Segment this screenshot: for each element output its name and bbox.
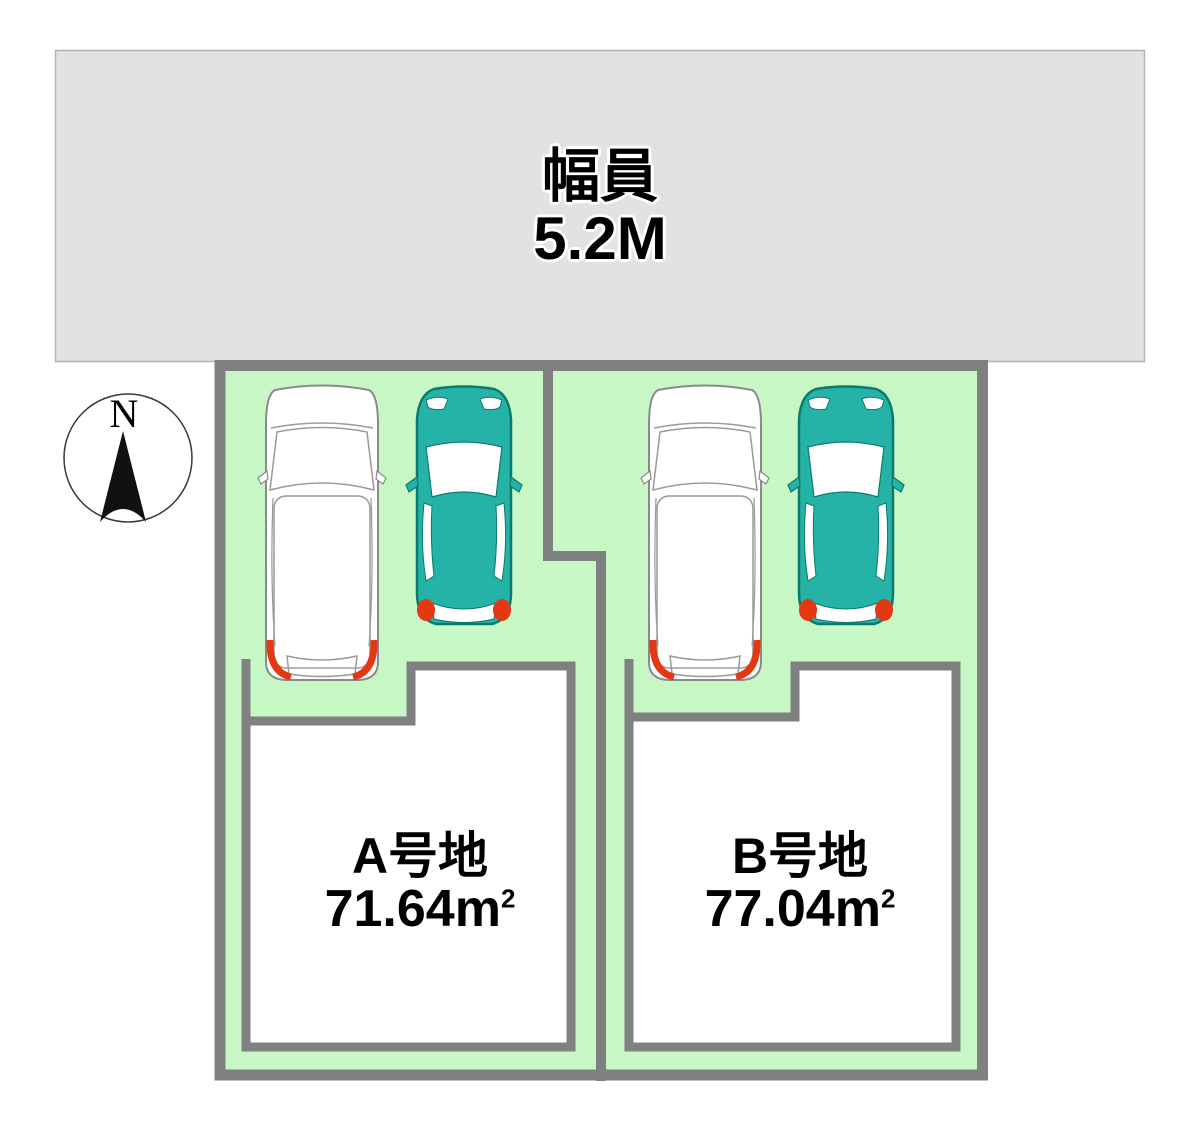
plot-a-name: A号地	[325, 830, 516, 882]
road-width-label: 幅員 5.2M	[533, 146, 666, 271]
site-plan-diagram: N 幅員 5.2M A号地 71.64m2 B号地 77.04m2	[0, 0, 1200, 1125]
road-width-title: 幅員	[533, 146, 666, 207]
plot-a-label: A号地 71.64m2	[325, 830, 516, 936]
plot-b-label: B号地 77.04m2	[705, 830, 896, 936]
plot-b-area-unit: m	[835, 880, 881, 938]
plot-b-area-value: 77.04	[705, 880, 835, 938]
plot-a-area-superscript: 2	[501, 884, 515, 914]
plot-b-minivan	[641, 386, 769, 681]
plot-a-area-unit: m	[455, 880, 501, 938]
plot-b-area: 77.04m2	[705, 882, 896, 936]
plot-a-minivan	[258, 386, 386, 681]
plot-a-area-value: 71.64	[325, 880, 455, 938]
plot-a-area: 71.64m2	[325, 882, 516, 936]
plot-b-area-superscript: 2	[881, 884, 895, 914]
plot-b-name: B号地	[705, 830, 896, 882]
plot-b-teal-car	[788, 387, 904, 625]
compass: N	[64, 391, 192, 522]
plot-a-teal-car	[406, 387, 522, 625]
compass-north-letter: N	[110, 391, 139, 436]
road-width-value: 5.2M	[533, 207, 666, 271]
